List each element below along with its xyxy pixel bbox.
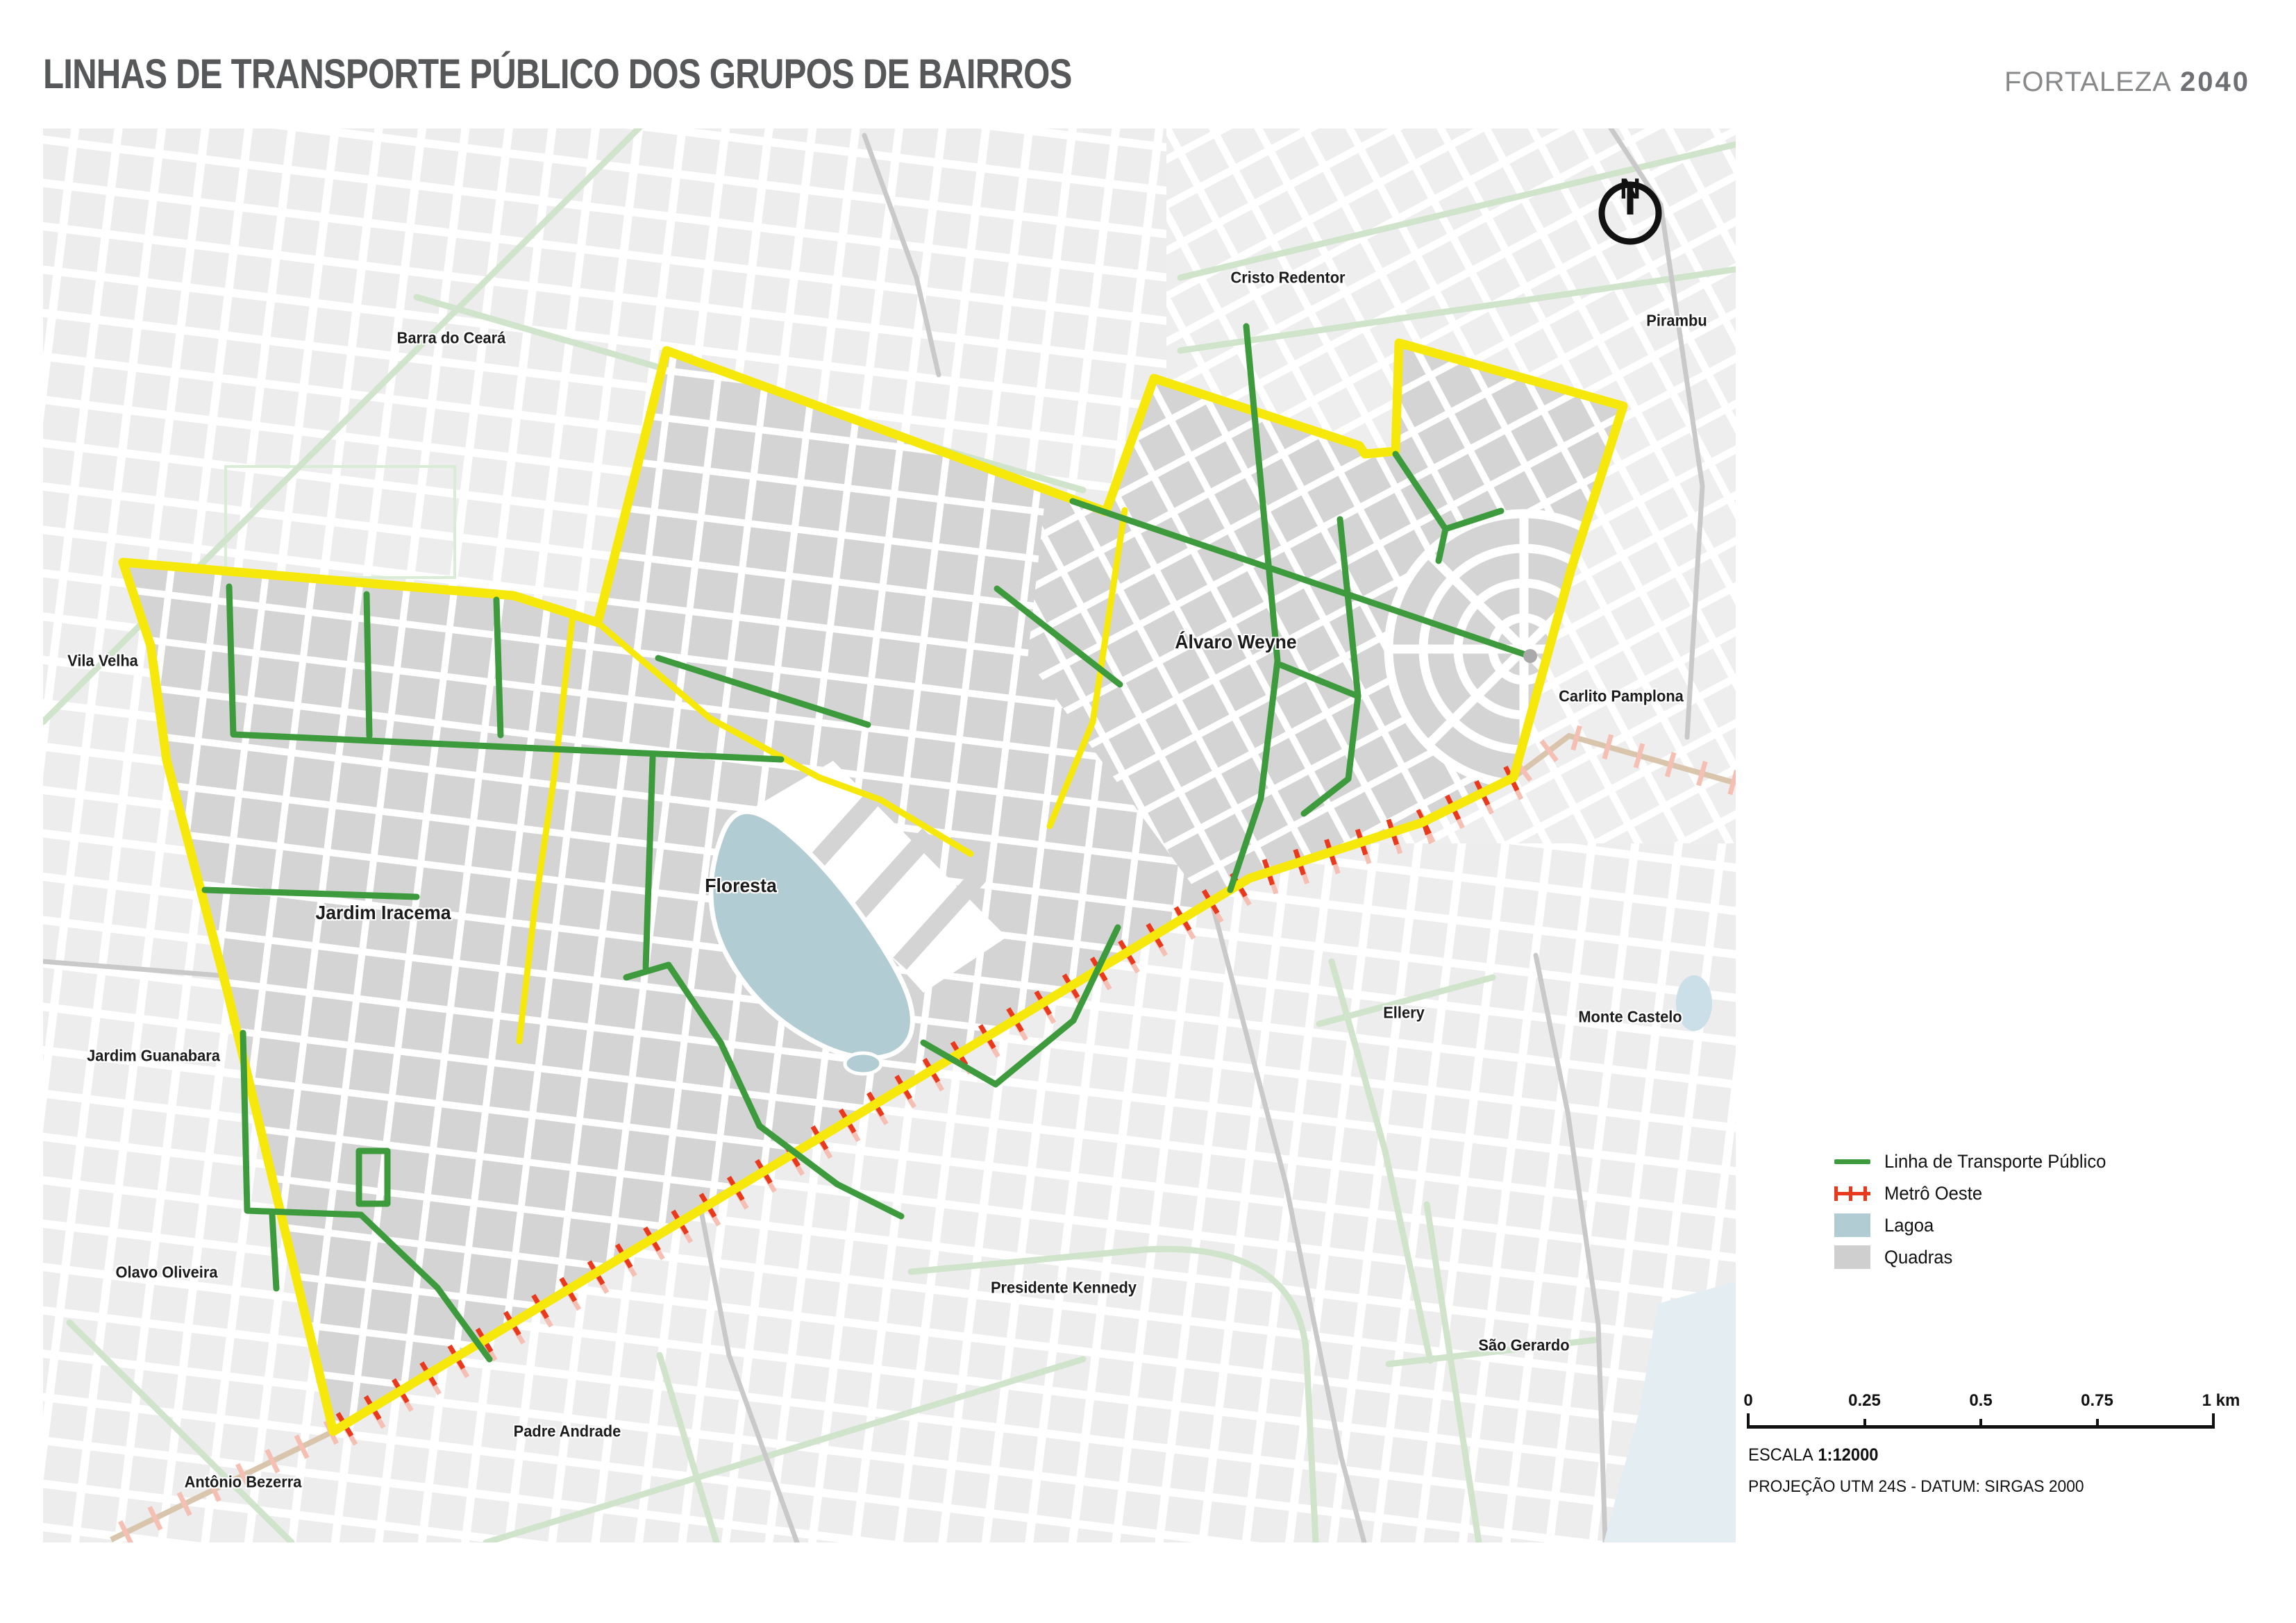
swatch-symbol-icon	[1834, 1245, 1873, 1269]
compass-icon	[1597, 174, 1664, 246]
legend-item-label: Linha de Transporte Público	[1884, 1151, 2106, 1172]
map-label: Monte Castelo	[1578, 1008, 1682, 1027]
map-label: Jardim Iracema	[315, 902, 451, 924]
scale-tick-label: 0	[1743, 1391, 1752, 1411]
scale-bar-line	[1748, 1412, 2213, 1429]
map-label: Barra do Ceará	[397, 329, 506, 348]
map-label: Presidente Kennedy	[991, 1279, 1137, 1297]
legend: Linha de Transporte PúblicoMetrô OesteLa…	[1834, 1145, 2118, 1273]
scale-tick	[1979, 1419, 1982, 1429]
map-label: Jardim Guanabara	[87, 1047, 220, 1066]
map-label: Olavo Oliveira	[116, 1263, 218, 1282]
map-label: Antônio Bezerra	[185, 1473, 302, 1492]
north-arrow: N	[1597, 174, 1664, 203]
map-label: Ellery	[1383, 1004, 1425, 1023]
legend-item-label: Metrô Oeste	[1884, 1183, 1982, 1204]
map-label: Padre Andrade	[514, 1422, 621, 1441]
legend-item: Lagoa	[1834, 1209, 2118, 1241]
swatch-symbol-icon	[1834, 1213, 1873, 1237]
brand-year: 2040	[2180, 67, 2250, 97]
map-label: Pirambu	[1646, 312, 1707, 330]
legend-item-label: Quadras	[1884, 1247, 1952, 1268]
legend-item: Quadras	[1834, 1241, 2118, 1273]
scale-tick-label: 0.5	[1969, 1391, 1992, 1411]
map-label: Vila Velha	[67, 652, 138, 671]
scale-bar: 00.250.50.751 km	[1748, 1391, 2213, 1429]
scale-bar-labels: 00.250.50.751 km	[1748, 1391, 2213, 1412]
scale-tick	[2096, 1419, 2099, 1429]
brand-name: FORTALEZA	[2004, 67, 2172, 97]
map-label: São Gerardo	[1478, 1336, 1569, 1355]
map-label: Álvaro Weyne	[1175, 631, 1296, 653]
map-canvas: Barra do CearáCristo RedentorPirambuVila…	[43, 128, 1736, 1542]
page: LINHAS DE TRANSPORTE PÚBLICO DOS GRUPOS …	[0, 0, 2296, 1623]
map-label: Cristo Redentor	[1230, 269, 1345, 287]
page-title: LINHAS DE TRANSPORTE PÚBLICO DOS GRUPOS …	[43, 50, 1072, 98]
map-svg	[43, 128, 1736, 1542]
scale-tick-label: 0.75	[2081, 1391, 2113, 1411]
metro-symbol-icon	[1834, 1184, 1873, 1202]
legend-item-label: Lagoa	[1884, 1215, 1934, 1236]
scale-text: ESCALA 1:12000	[1748, 1445, 1879, 1465]
scale-tick	[2212, 1413, 2215, 1429]
transit-terminus-dot	[1523, 649, 1537, 663]
line-symbol-icon	[1834, 1159, 1873, 1164]
scale-tick-label: 1 km	[2202, 1391, 2240, 1411]
map-label: Floresta	[705, 875, 776, 897]
projection-text: PROJEÇÃO UTM 24S - DATUM: SIRGAS 2000	[1748, 1477, 2084, 1497]
legend-item: Linha de Transporte Público	[1834, 1145, 2118, 1177]
map-label: Carlito Pamplona	[1559, 687, 1684, 706]
brand-logo: FORTALEZA 2040	[2004, 67, 2250, 98]
scale-tick	[1747, 1413, 1750, 1429]
scale-tick-label: 0.25	[1848, 1391, 1881, 1411]
scale-tick	[1863, 1419, 1866, 1429]
legend-item: Metrô Oeste	[1834, 1177, 2118, 1209]
